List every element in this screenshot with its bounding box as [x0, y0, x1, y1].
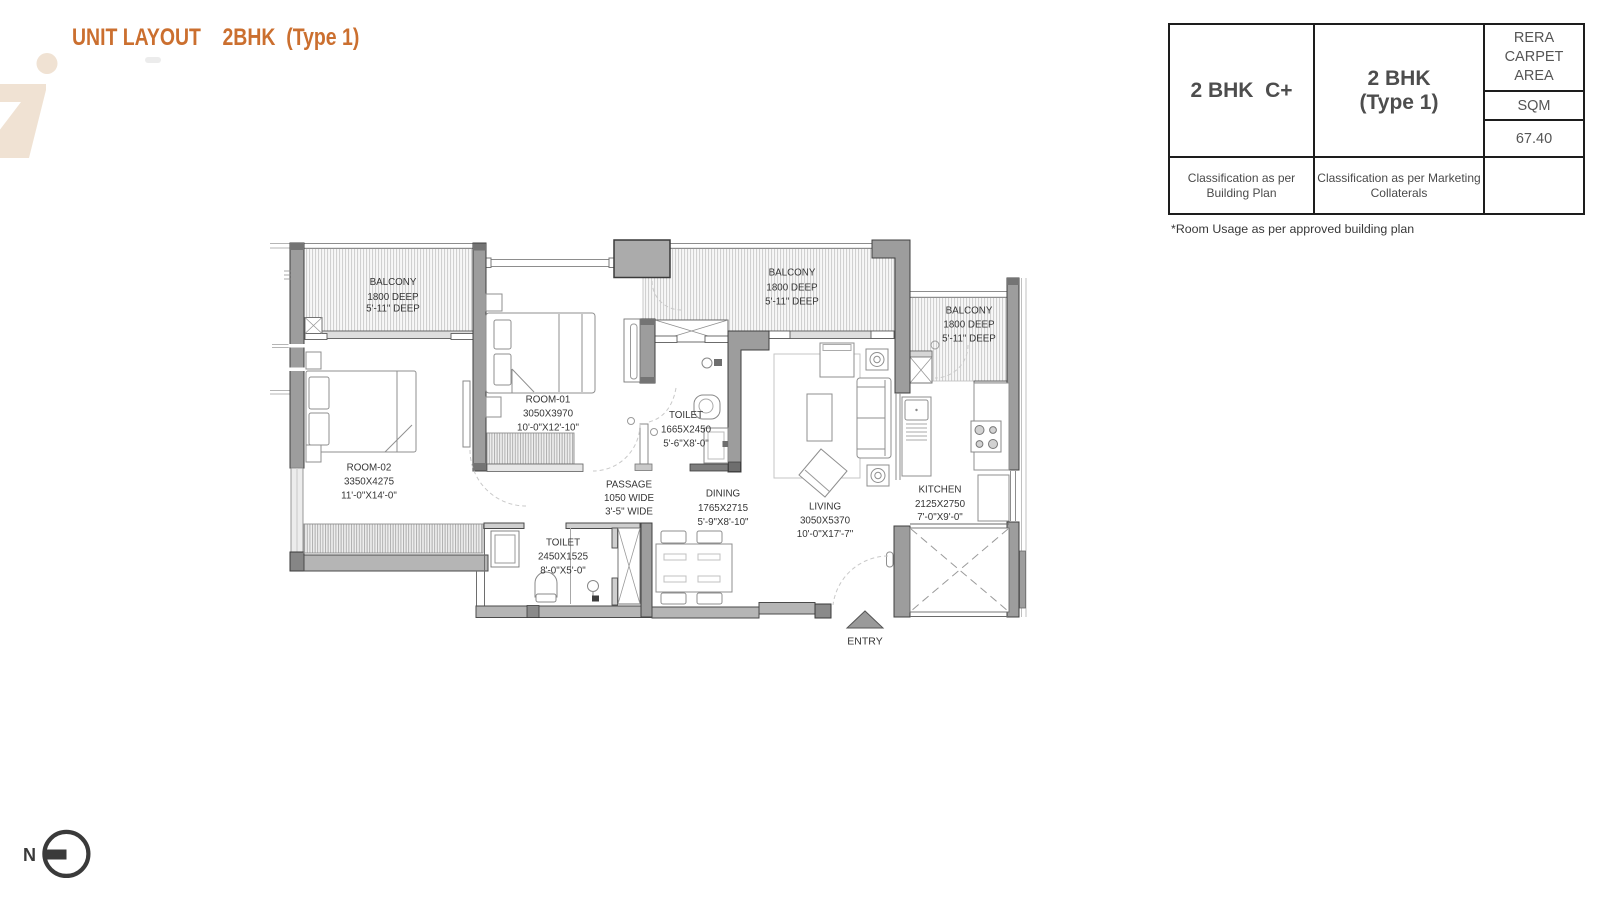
svg-text:DINING: DINING	[706, 489, 740, 500]
svg-text:ENTRY: ENTRY	[847, 636, 882, 648]
svg-text:TOILET: TOILET	[546, 538, 580, 549]
svg-text:ROOM-02: ROOM-02	[347, 463, 392, 474]
svg-text:5'-11" DEEP: 5'-11" DEEP	[366, 304, 420, 315]
svg-text:3050X5370: 3050X5370	[800, 516, 851, 527]
svg-text:1800 DEEP: 1800 DEEP	[367, 292, 419, 303]
svg-text:10'-0"X12'-10": 10'-0"X12'-10"	[517, 423, 579, 434]
svg-text:8'-0"X5'-0": 8'-0"X5'-0"	[540, 566, 586, 577]
svg-text:1665X2450: 1665X2450	[661, 425, 712, 436]
svg-text:7'-0"X9'-0": 7'-0"X9'-0"	[917, 512, 963, 523]
svg-text:ROOM-01: ROOM-01	[526, 395, 571, 406]
svg-text:TOILET: TOILET	[669, 410, 703, 421]
svg-text:N: N	[23, 845, 36, 865]
svg-text:3'-5" WIDE: 3'-5" WIDE	[605, 507, 653, 518]
svg-text:10'-0"X17'-7": 10'-0"X17'-7"	[797, 529, 854, 540]
svg-text:BALCONY: BALCONY	[370, 277, 417, 288]
svg-text:LIVING: LIVING	[809, 502, 841, 513]
svg-text:KITCHEN: KITCHEN	[918, 485, 961, 496]
svg-text:2125X2750: 2125X2750	[915, 499, 966, 510]
svg-text:1800 DEEP: 1800 DEEP	[766, 283, 818, 294]
svg-text:5'-6"X8'-0": 5'-6"X8'-0"	[663, 439, 709, 450]
svg-text:5'-9"X8'-10": 5'-9"X8'-10"	[698, 517, 750, 528]
svg-text:BALCONY: BALCONY	[769, 268, 816, 279]
svg-text:11'-0"X14'-0": 11'-0"X14'-0"	[341, 491, 397, 502]
svg-text:PASSAGE: PASSAGE	[606, 480, 653, 491]
svg-text:1050 WIDE: 1050 WIDE	[604, 493, 655, 504]
svg-text:5'-11" DEEP: 5'-11" DEEP	[942, 334, 996, 345]
svg-text:1800 DEEP: 1800 DEEP	[943, 320, 995, 331]
svg-text:3350X4275: 3350X4275	[344, 477, 395, 488]
svg-text:5'-11" DEEP: 5'-11" DEEP	[765, 297, 819, 308]
svg-text:2450X1525: 2450X1525	[538, 552, 589, 563]
svg-text:3050X3970: 3050X3970	[523, 409, 574, 420]
svg-text:BALCONY: BALCONY	[946, 306, 993, 317]
svg-text:1765X2715: 1765X2715	[698, 503, 749, 514]
